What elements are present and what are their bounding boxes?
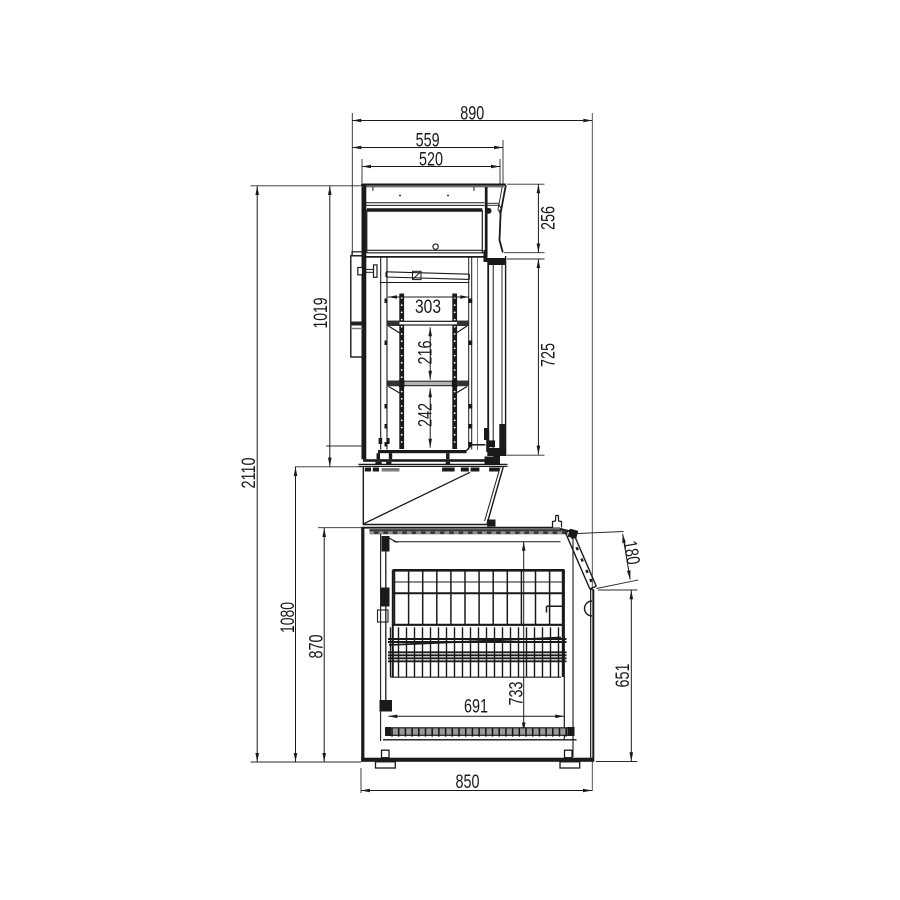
svg-text:559: 559 (416, 131, 440, 152)
svg-text:733: 733 (507, 682, 528, 706)
svg-text:850: 850 (456, 772, 480, 793)
svg-text:870: 870 (307, 635, 328, 659)
svg-text:1019: 1019 (311, 298, 332, 329)
svg-text:651: 651 (613, 664, 634, 688)
svg-text:303: 303 (415, 297, 441, 318)
svg-text:216: 216 (416, 341, 437, 365)
svg-text:180: 180 (619, 539, 644, 566)
svg-text:1080: 1080 (278, 602, 299, 633)
svg-text:2110: 2110 (239, 458, 260, 489)
svg-text:725: 725 (539, 343, 560, 367)
svg-text:242: 242 (416, 403, 437, 427)
svg-text:890: 890 (460, 104, 484, 125)
svg-text:691: 691 (464, 697, 488, 718)
svg-text:520: 520 (419, 150, 443, 171)
svg-text:256: 256 (539, 206, 560, 230)
